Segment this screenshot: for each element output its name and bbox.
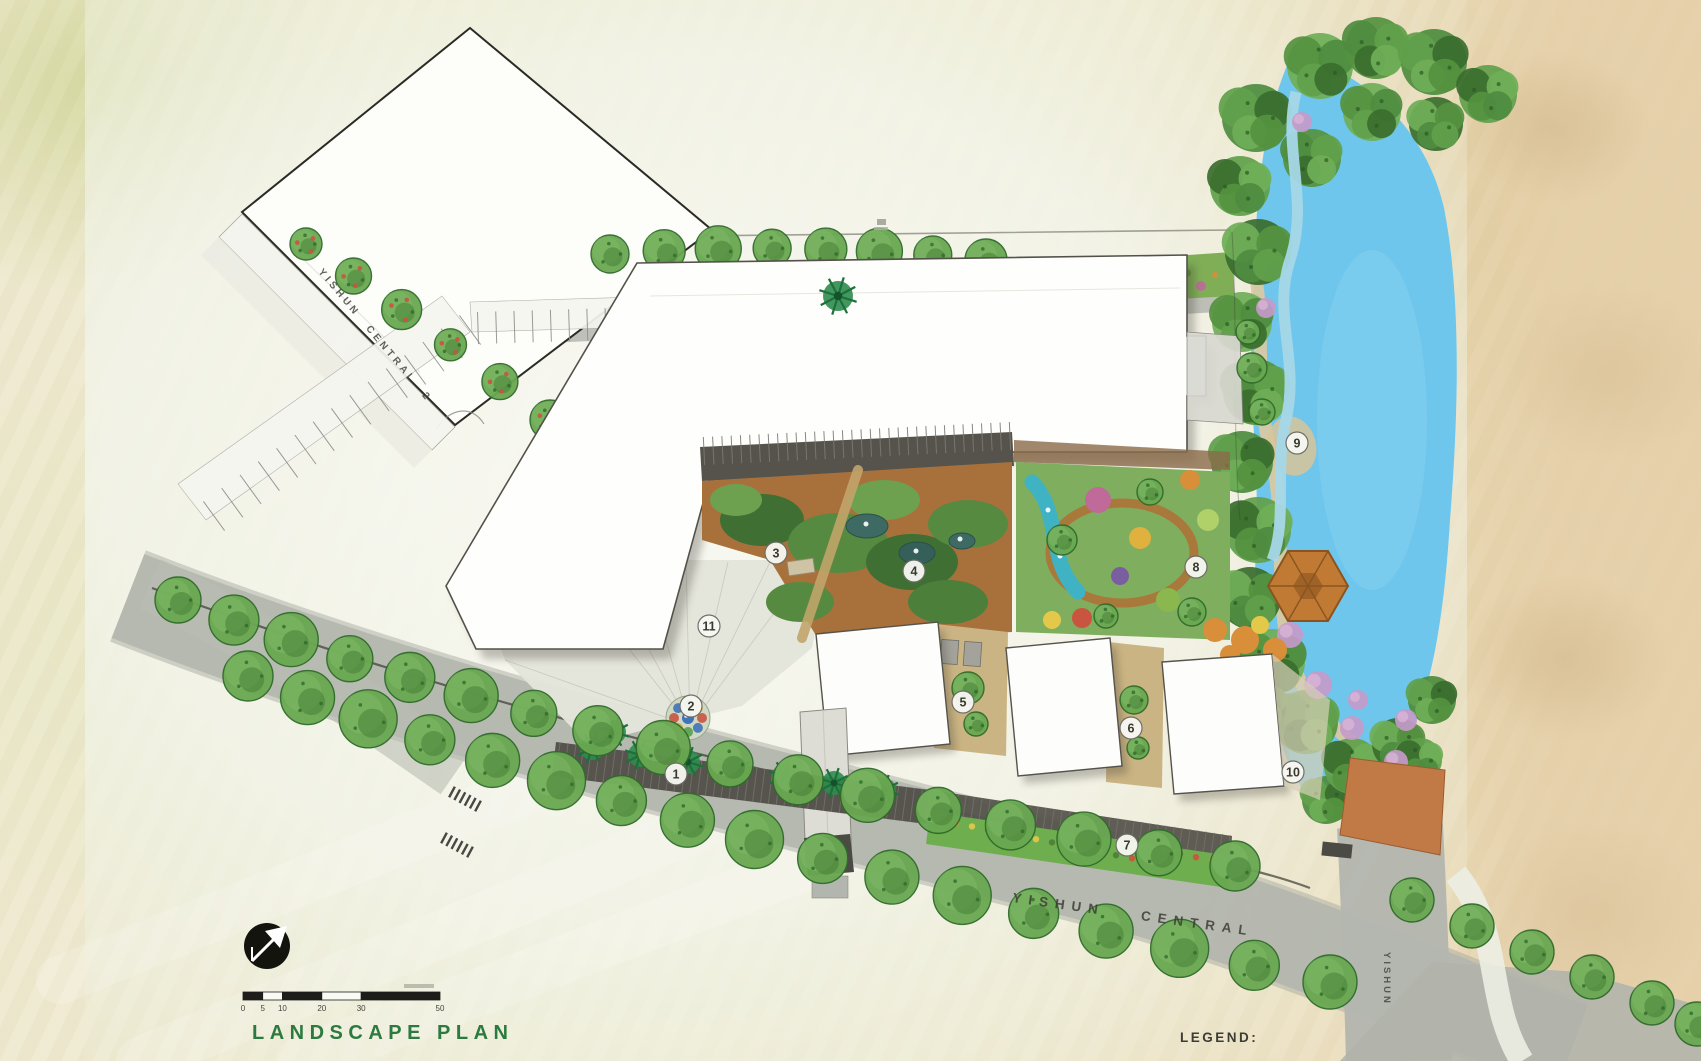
scale-bar-segment bbox=[243, 992, 263, 1000]
scale-tick-label: 0 bbox=[241, 1004, 246, 1013]
marker-number: 10 bbox=[1286, 766, 1300, 780]
plan-marker-6: 6 bbox=[1120, 717, 1142, 739]
plan-marker-2: 2 bbox=[680, 695, 702, 717]
marker-number: 5 bbox=[960, 696, 967, 710]
marker-number: 7 bbox=[1124, 839, 1131, 853]
scale-bar-segment bbox=[322, 992, 361, 1000]
marker-number: 2 bbox=[688, 700, 695, 714]
plan-marker-11: 11 bbox=[698, 615, 720, 637]
scale-tick-label: 5 bbox=[260, 1004, 265, 1013]
plan-marker-10: 10 bbox=[1282, 761, 1304, 783]
scale-bar-note bbox=[404, 984, 434, 988]
marker-number: 11 bbox=[702, 620, 715, 634]
plan-title: LANDSCAPE PLAN bbox=[252, 1022, 513, 1044]
marker-number: 1 bbox=[673, 768, 680, 782]
plan-marker-3: 3 bbox=[765, 542, 787, 564]
marker-number: 3 bbox=[773, 547, 780, 561]
scale-bar-segment bbox=[263, 992, 283, 1000]
lake-highlight bbox=[1317, 250, 1427, 590]
block-2 bbox=[1006, 638, 1122, 776]
marker-number: 9 bbox=[1294, 437, 1301, 451]
scale-tick-label: 50 bbox=[436, 1004, 445, 1013]
block-3 bbox=[1162, 654, 1284, 794]
plan-marker-1: 1 bbox=[665, 763, 687, 785]
north-arrow-icon bbox=[244, 923, 290, 969]
legend-label: LEGEND: bbox=[1180, 1030, 1258, 1045]
plan-marker-9: 9 bbox=[1286, 432, 1308, 454]
landscape-plan-canvas: 1234567891011 YISHUN CENTRAL 2 YISHUN CE… bbox=[0, 0, 1701, 1061]
plan-marker-5: 5 bbox=[952, 691, 974, 713]
plan-marker-8: 8 bbox=[1185, 556, 1207, 578]
street-label-yishun: YISHUN bbox=[1381, 952, 1392, 1006]
landscape-plan-drawing: 1234567891011 YISHUN CENTRAL 2 YISHUN CE… bbox=[0, 0, 1701, 1061]
scale-bar-segment bbox=[361, 992, 440, 1000]
plan-marker-4: 4 bbox=[903, 560, 925, 582]
building-annex bbox=[1187, 332, 1243, 424]
marker-number: 4 bbox=[911, 565, 918, 579]
garden-pond bbox=[949, 533, 975, 549]
scale-tick-label: 30 bbox=[357, 1004, 366, 1013]
scale-tick-label: 20 bbox=[317, 1004, 326, 1013]
scale-tick-label: 10 bbox=[278, 1004, 287, 1013]
marker-number: 6 bbox=[1128, 722, 1135, 736]
plan-marker-7: 7 bbox=[1116, 834, 1138, 856]
roof-vent bbox=[963, 641, 982, 666]
marker-number: 8 bbox=[1193, 561, 1200, 575]
scale-bar-segment bbox=[282, 992, 321, 1000]
